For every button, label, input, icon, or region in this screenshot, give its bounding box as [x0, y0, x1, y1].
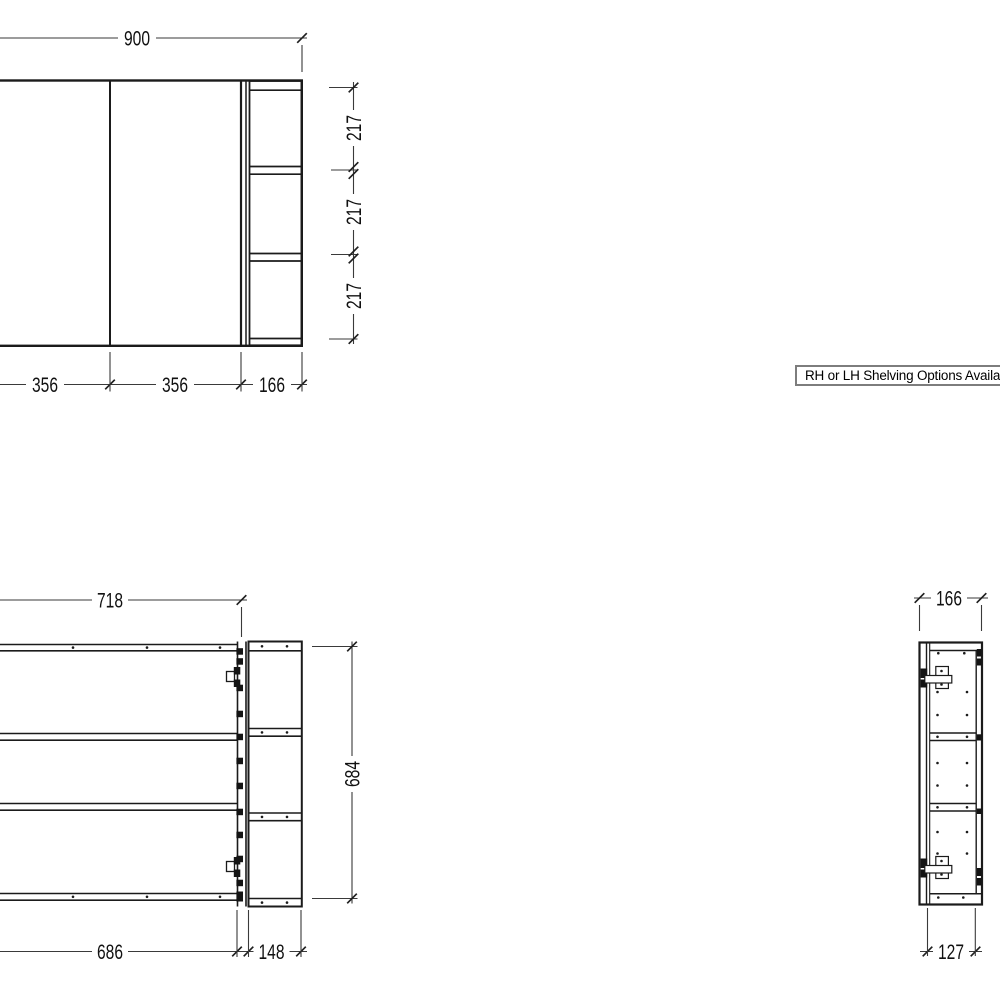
dim-label-door-span-width: 686: [97, 941, 123, 964]
dim-label-shelf-bay-width: 148: [259, 941, 285, 964]
dim-label-shelving-width: 166: [259, 374, 285, 397]
shelf-pin-holes: [936, 691, 968, 855]
pin-hole-dot: [936, 691, 939, 694]
side-shelf-lines: [930, 733, 977, 811]
screw-dot: [146, 646, 149, 649]
carcass-dim-body-height: 684: [312, 642, 364, 904]
carcass-dim-body-width: 718: [0, 589, 247, 637]
hinge-block: [234, 667, 241, 675]
shelving-options-note: RH or LH Shelving Options Available: [795, 365, 1000, 386]
side-hinge-bottom: [921, 857, 952, 879]
hinge-screw-dot: [940, 860, 943, 863]
system-hole-mark: [236, 783, 243, 790]
drawing-sheet: 900 356 356 166 217 217 217: [0, 0, 1000, 1000]
screw-dot: [219, 646, 222, 649]
connector-block: [977, 868, 982, 876]
pin-hole-dot: [966, 762, 969, 765]
hinge-screw-dot: [940, 670, 943, 673]
connector-block: [977, 649, 982, 657]
dim-label-body-height: 684: [341, 761, 364, 787]
hinge-arm-icon: [925, 676, 952, 684]
system-hole-mark: [236, 809, 243, 816]
dim-label-opening2-height: 217: [343, 199, 366, 225]
dim-label-opening1-height: 217: [343, 115, 366, 141]
pin-hole-dot: [936, 852, 939, 855]
shelving-box: [250, 81, 302, 345]
screw-dot: [286, 816, 289, 819]
screw-dot: [963, 652, 966, 655]
screw-dot: [219, 896, 222, 899]
pin-hole-dot: [936, 784, 939, 787]
screw-dot: [261, 731, 264, 734]
screw-dot: [146, 896, 149, 899]
hinge-screw-dot: [940, 873, 943, 876]
pin-hole-dot: [966, 784, 969, 787]
front-cabinet-outline: [0, 81, 302, 346]
system-hole-mark: [236, 880, 243, 887]
hinge-block: [234, 680, 241, 688]
screw-dot: [261, 901, 264, 904]
screw-dot: [937, 652, 940, 655]
carcass-shelving-panel: [249, 642, 302, 907]
system-hole-mark: [236, 758, 243, 765]
pin-hole-dot: [936, 714, 939, 717]
connector-block: [977, 734, 982, 740]
system-hole-mark: [236, 734, 243, 741]
screw-dot: [286, 901, 289, 904]
system-hole-mark: [236, 658, 243, 665]
carcass-view: [0, 642, 302, 907]
side-dim-internal-depth: 127: [920, 908, 982, 964]
screw-dot: [937, 896, 940, 899]
dim-label-door2-width: 356: [162, 374, 188, 397]
screw-dot: [936, 736, 939, 739]
hinge-screw-dot: [940, 683, 943, 686]
carcass-shelf-lines: [250, 651, 302, 899]
screw-dot: [72, 896, 75, 899]
dim-label-overall-width: 900: [124, 27, 150, 50]
hinge-arm-icon: [925, 866, 952, 874]
note-label: RH or LH Shelving Options Available: [805, 368, 1000, 383]
system-hole-mark: [236, 832, 243, 839]
side-section-view: [920, 643, 983, 905]
system-hole-mark: [236, 648, 243, 655]
pin-hole-dot: [936, 762, 939, 765]
dim-label-body-width: 718: [97, 589, 123, 612]
screw-dot: [286, 731, 289, 734]
screw-dot: [286, 645, 289, 648]
dim-label-overall-depth: 166: [936, 587, 962, 610]
pin-hole-dot: [966, 691, 969, 694]
screw-dot: [261, 816, 264, 819]
dim-label-internal-depth: 127: [938, 941, 964, 964]
carcass-dim-bottom-widths: 686 148: [0, 910, 307, 964]
system-hole-mark: [236, 711, 243, 718]
pin-hole-dot: [966, 852, 969, 855]
front-dim-bottom-widths: 356 356 166: [0, 352, 307, 397]
hinge-block: [234, 857, 241, 865]
cad-drawing: 900 356 356 166 217 217 217: [0, 0, 1000, 1000]
system-hole-mark: [236, 892, 243, 902]
pin-hole-dot: [966, 831, 969, 834]
front-elevation-view: [0, 81, 302, 346]
dim-label-door1-width: 356: [32, 374, 58, 397]
screw-dot: [962, 896, 965, 899]
screw-dot: [72, 646, 75, 649]
carcass-panel-lines: [0, 645, 238, 901]
screw-dot: [261, 645, 264, 648]
screw-dot: [936, 806, 939, 809]
shelving-shelf-lines: [250, 90, 301, 338]
dim-label-opening3-height: 217: [343, 283, 366, 309]
screw-dot: [966, 736, 969, 739]
connector-block: [977, 878, 982, 886]
screw-dot: [966, 806, 969, 809]
pin-hole-dot: [966, 714, 969, 717]
connector-block: [977, 659, 982, 666]
front-dim-overall-width: 900: [0, 27, 307, 72]
pin-hole-dot: [936, 831, 939, 834]
side-dim-overall-depth: 166: [914, 587, 988, 631]
side-hinge-top: [921, 667, 952, 689]
front-shelving-section: [250, 81, 302, 345]
connector-block: [977, 809, 982, 815]
front-dim-shelf-heights: 217 217 217: [329, 82, 366, 344]
hinge-cup-icon: [227, 672, 235, 682]
hinge-block: [234, 870, 241, 878]
hinge-cup-icon: [227, 862, 235, 872]
